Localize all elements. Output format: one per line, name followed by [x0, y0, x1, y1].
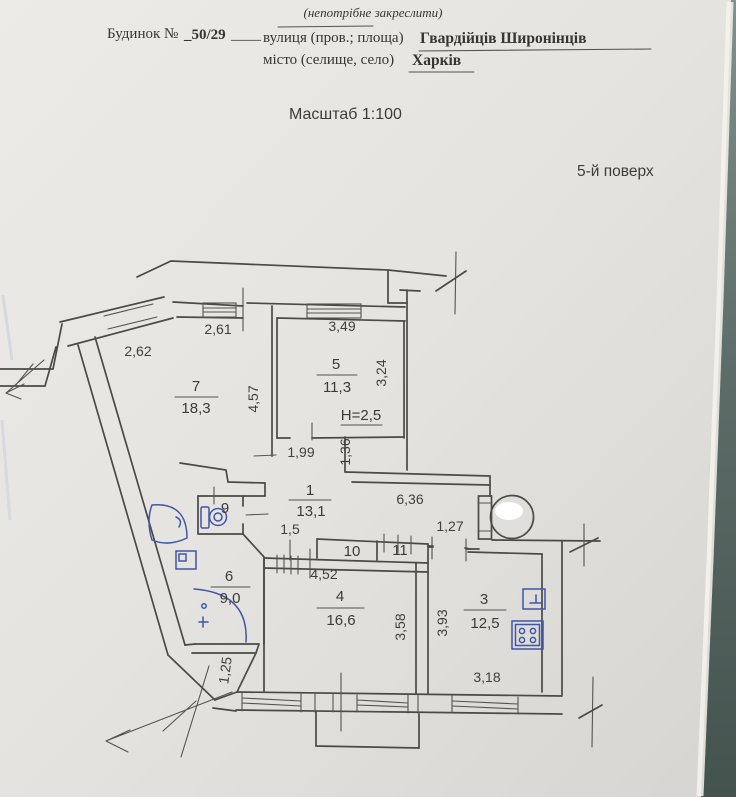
house-number: _50/29	[183, 27, 226, 43]
dim-3-24: 3,24	[373, 359, 389, 386]
floor-plan-svg: (непотрібне закреслити) Будинок № _50/29…	[0, 0, 736, 797]
redaction-patch	[495, 502, 523, 520]
wc-num: 9	[221, 500, 229, 517]
street-value: Гвардійців Широнінців	[420, 30, 586, 47]
dim-3-93: 3,93	[434, 609, 450, 636]
room5-area: 11,3	[323, 379, 351, 396]
strike-note: (непотрібне закреслити)	[304, 5, 443, 20]
room7-area: 18,3	[181, 400, 210, 417]
room7-num: 7	[192, 378, 200, 395]
room3-num: 3	[480, 591, 488, 608]
room1-area: 13,1	[296, 503, 325, 520]
room6-num: 6	[225, 568, 233, 585]
dim-4-52: 4,52	[310, 566, 337, 582]
house-underscores: ____	[230, 27, 262, 43]
dim-4-57: 4,57	[245, 385, 261, 412]
room5-ceiling-height: H=2,5	[341, 407, 381, 424]
closet11-num: 11	[392, 542, 408, 559]
floor-label: 5-й поверх	[577, 163, 654, 180]
city-value: Харків	[412, 52, 461, 69]
dim-6-36: 6,36	[396, 491, 423, 507]
dim-1-36: 1,36	[337, 438, 353, 465]
dim-2-61: 2,61	[204, 321, 231, 337]
dim-1-27: 1,27	[436, 518, 463, 534]
dim-2-62: 2,62	[124, 343, 151, 359]
dim-1-99: 1,99	[287, 444, 314, 460]
room1-num: 1	[306, 482, 314, 499]
room4-area: 16,6	[326, 612, 355, 629]
street-label: вулиця (пров.; площа)	[263, 30, 404, 46]
floor-plan-photo: (непотрібне закреслити) Будинок № _50/29…	[0, 0, 736, 797]
dim-3-18: 3,18	[473, 669, 500, 685]
room3-area: 12,5	[470, 615, 499, 632]
closet10-num: 10	[344, 543, 361, 560]
house-label: Будинок №	[107, 26, 178, 42]
room5-num: 5	[332, 356, 340, 373]
room6-area: 9,0	[220, 590, 241, 607]
city-label: місто (селище, село)	[263, 52, 394, 68]
room4-num: 4	[336, 588, 344, 605]
scale-label: Масштаб 1:100	[289, 106, 402, 123]
dim-1-5: 1,5	[280, 521, 300, 537]
dim-3-49: 3,49	[328, 318, 355, 334]
dim-3-58: 3,58	[392, 613, 408, 640]
